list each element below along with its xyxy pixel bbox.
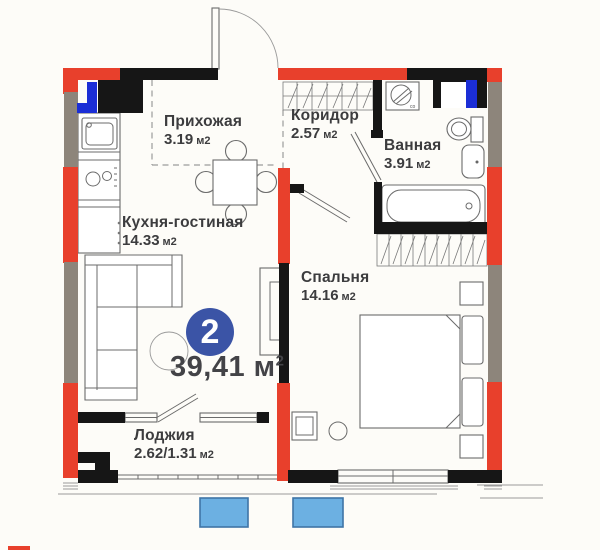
room-label-corridor: Коридор 2.57м2 — [291, 107, 359, 144]
floor-plan: co — [0, 0, 600, 550]
bedroom-armchair — [292, 412, 317, 440]
room-label-bedroom: Спальня 14.16м2 — [301, 269, 369, 306]
room-area: 14.16 — [301, 287, 339, 304]
total-area-sup: 2 — [276, 352, 285, 369]
room-area-unit: м2 — [416, 159, 430, 171]
wardrobe-hatch-bedroom — [377, 234, 487, 266]
room-name: Спальня — [301, 269, 369, 287]
rooms-count-badge: 2 — [186, 308, 234, 356]
room-area-unit: м2 — [163, 236, 177, 248]
sofa — [85, 255, 182, 400]
tv-stand — [260, 268, 282, 355]
rooms-count: 2 — [201, 313, 220, 352]
washer-label: co — [410, 104, 416, 110]
nightstand-bottom — [460, 435, 483, 458]
room-area: 2.62/1.31 — [134, 445, 197, 462]
bed — [360, 315, 483, 428]
red-fragment — [8, 546, 30, 550]
room-name: Прихожая — [164, 113, 242, 131]
nightstand-top — [460, 282, 483, 305]
room-area: 14.33 — [122, 232, 160, 249]
adjacent-balcony-1 — [200, 498, 248, 527]
total-area-value: 39,41 — [170, 351, 245, 383]
toilet — [447, 117, 483, 142]
dining-table — [196, 141, 277, 225]
room-area-unit: м2 — [196, 135, 210, 147]
room-name: Ванная — [384, 137, 441, 155]
total-area: 39,41 м2 — [170, 351, 284, 384]
kitchen-sink — [82, 118, 117, 149]
total-area-unit: м — [254, 351, 276, 383]
bathtub — [382, 185, 485, 227]
entrance-door — [212, 8, 278, 69]
washing-machine: co — [386, 82, 419, 110]
room-area: 3.19 — [164, 131, 193, 148]
room-label-kitchen-living: Кухня-гостиная 14.33м2 — [122, 214, 244, 251]
bedroom-stool — [329, 422, 347, 440]
room-area-unit: м2 — [342, 291, 356, 303]
room-name: Лоджия — [134, 427, 214, 445]
ground-lines — [58, 485, 543, 498]
bathroom-sink — [462, 145, 484, 178]
room-area-unit: м2 — [323, 129, 337, 141]
room-name: Кухня-гостиная — [122, 214, 244, 232]
room-name: Коридор — [291, 107, 359, 125]
floor-plan-drawing: co — [0, 0, 600, 550]
loggia-door — [156, 394, 198, 422]
room-label-bathroom: Ванная 3.91м2 — [384, 137, 441, 174]
room-label-hallway: Прихожая 3.19м2 — [164, 113, 242, 150]
room-area: 2.57 — [291, 125, 320, 142]
room-label-loggia: Лоджия 2.62/1.31м2 — [134, 427, 214, 464]
bedroom-door — [299, 189, 350, 222]
adjacent-balcony-2 — [293, 498, 343, 527]
room-area: 3.91 — [384, 155, 413, 172]
wardrobe-hatch-corridor — [283, 82, 373, 110]
room-area-unit: м2 — [200, 449, 214, 461]
